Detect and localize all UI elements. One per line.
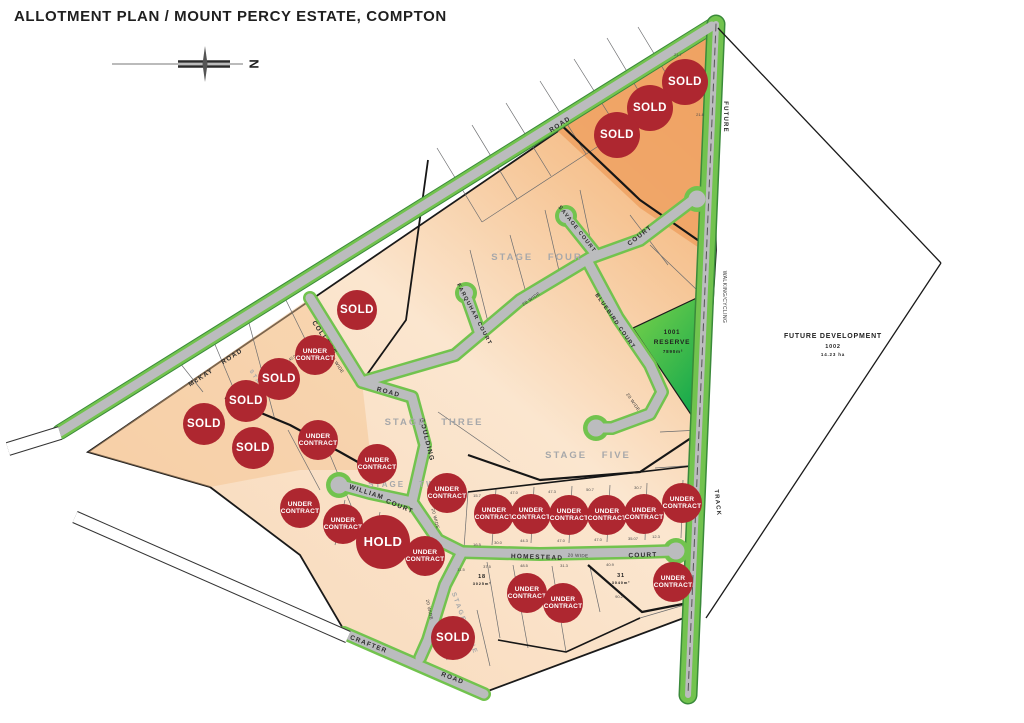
north-label: N <box>247 59 262 68</box>
area-label: FUTURE DEVELOPMENT <box>784 333 882 340</box>
road-label: FUTURE <box>722 101 728 133</box>
allotment-plan-map: N McKAYROADROADCOLLEGE20 WIDEROADGOULDIN… <box>0 0 1024 723</box>
dim-label: 90.2 <box>615 594 624 599</box>
road-label: TRACK <box>713 489 722 516</box>
dim-label: 47.0 <box>594 537 603 542</box>
dim-label: 30.7 <box>634 485 643 490</box>
dim-label: 48.5 <box>520 563 529 568</box>
dim-label: 30.0 <box>494 540 503 545</box>
area-label: 1002 <box>825 344 840 350</box>
area-label: 14.23 ha <box>821 352 845 357</box>
north-arrow: N <box>112 46 262 82</box>
roadsmall-label: WALKING/CYCLING <box>721 271 727 324</box>
dim-label: 47.3 <box>548 489 557 494</box>
area-label: 18 <box>478 574 486 580</box>
dim-label: 21.8 <box>696 112 705 117</box>
dim-label: 44.3 <box>520 538 529 543</box>
dim-label: 50.7 <box>586 487 595 492</box>
area-label: 3040m² <box>612 580 631 585</box>
stage-label: STAGE THREE <box>385 417 484 428</box>
dim-label: 11.5 <box>457 567 465 572</box>
area-label: 1001 <box>664 330 681 336</box>
dim-label: 16.5 <box>473 542 482 547</box>
future-development-boundary <box>706 28 941 618</box>
allotment-plan-page: ALLOTMENT PLAN / MOUNT PERCY ESTATE, COM… <box>0 0 1024 723</box>
stage-label: STAGE FOUR <box>491 252 583 263</box>
dim-label: 40.9 <box>606 562 615 567</box>
stage-label: STAGE TWO <box>368 480 444 489</box>
dim-label: 47.0 <box>557 538 566 543</box>
dim-label: 35.07 <box>628 536 639 541</box>
area-label: 31 <box>617 573 625 579</box>
area-label: 7890m² <box>663 349 683 354</box>
dim-label: 21.7 <box>674 52 683 57</box>
area-label: 3025m² <box>473 581 492 586</box>
key-house-icon: KEY2SALE <box>1012 717 1024 723</box>
dim-label: 47.0 <box>510 490 519 495</box>
dim-label: 15.7 <box>473 493 482 498</box>
roadsmall-label: 20 WIDE <box>568 553 589 559</box>
dim-label: 31.3 <box>560 563 569 568</box>
road-label: COURT <box>628 551 657 559</box>
stage-label: STAGE FIVE <box>545 450 631 461</box>
dim-label: 37.5 <box>483 564 492 569</box>
area-label: RESERVE <box>654 339 691 346</box>
dim-label: 12.3 <box>652 534 661 539</box>
